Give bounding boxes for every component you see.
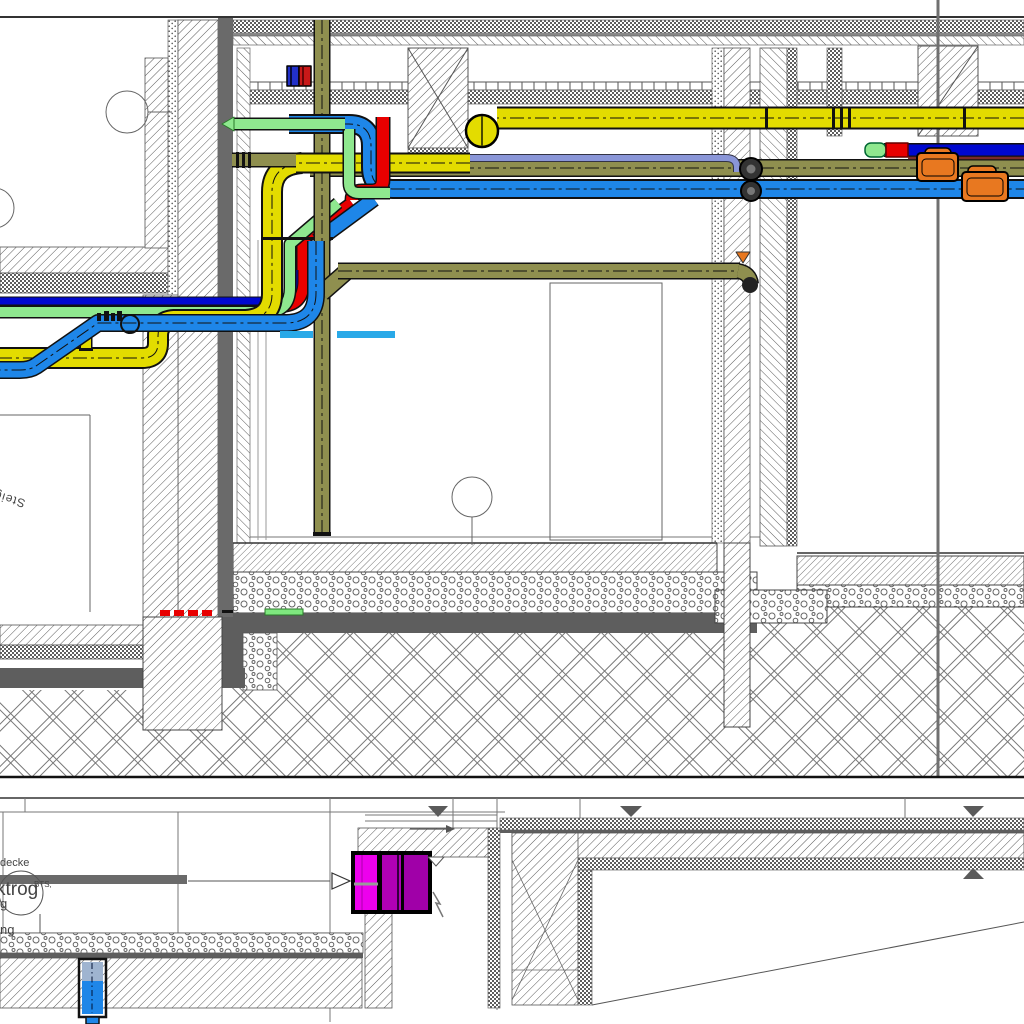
screed-hatch-band — [0, 958, 362, 1008]
ceiling-membrane-line — [233, 33, 1024, 36]
duct-end-cap — [742, 277, 758, 293]
left-floor-insulation — [0, 645, 160, 659]
gravel-step — [243, 633, 277, 690]
pipe-red-segment — [886, 143, 908, 157]
cyan-dash — [337, 331, 395, 338]
insulation-strip — [578, 870, 592, 1005]
green-seal-bar — [265, 609, 303, 615]
earth-hatch — [0, 690, 143, 776]
earth-hatch — [243, 633, 757, 776]
duct-wall-flange-hub — [747, 165, 756, 174]
insulation-band — [578, 858, 1024, 870]
inner-lining-upper — [145, 58, 168, 248]
lower-labels: decke ktrog BTS, g ng — [0, 857, 52, 937]
lower-floor — [0, 933, 363, 1008]
pipe-green-cap — [865, 143, 886, 157]
cyan-dash — [280, 331, 313, 338]
gravel-band-right — [797, 585, 1024, 607]
slab-line — [0, 953, 363, 958]
pipe-wall-flange-hub — [747, 187, 755, 195]
insulation-band — [500, 818, 1024, 830]
suspended-ceiling-insulation — [237, 90, 1024, 104]
shaft-wall-hatch — [365, 913, 392, 1008]
ceiling-insulation-band — [233, 20, 1024, 33]
suspended-ceiling-rail — [237, 82, 1024, 90]
left-floor-screed — [0, 625, 160, 645]
base-slab — [213, 613, 757, 633]
column-footing — [724, 543, 750, 727]
upper-section: Steig — [0, 0, 1024, 777]
stub-flange — [79, 348, 93, 351]
screed-band — [233, 543, 717, 572]
label-ng: ng — [0, 922, 14, 937]
door-opening — [550, 283, 662, 540]
pipe-continuation — [86, 1017, 99, 1024]
blue-pipe-section — [79, 959, 106, 1024]
flange-tick — [248, 152, 251, 168]
unit-panel-3 — [404, 855, 428, 910]
drain-zigzag-mark — [433, 892, 443, 917]
lower-roof-assembly — [500, 818, 1024, 1005]
riser-label: Steig — [0, 488, 27, 511]
valve-block-pair — [287, 66, 311, 86]
screed-band-right — [797, 556, 1024, 585]
screed-band — [512, 833, 1024, 858]
section-drawing: Steig — [0, 0, 1024, 1024]
flow-arrow-open — [332, 873, 350, 889]
callout-balloon — [106, 91, 148, 133]
fire-damper-pipe — [962, 166, 1008, 201]
duct-end-tick — [313, 532, 331, 536]
wall-footing — [143, 617, 222, 730]
label-bts: BTS, — [34, 880, 52, 889]
lower-section: decke ktrog BTS, g ng — [0, 798, 1024, 1024]
membrane-line — [500, 830, 1024, 833]
gravel-band — [0, 933, 363, 953]
slope-line — [592, 922, 1024, 1005]
label-decke: decke — [0, 857, 29, 869]
joint-tick — [222, 610, 233, 613]
shaft-insulation-strip — [488, 828, 500, 1008]
left-upper-floor-screed — [0, 247, 168, 273]
earth-hatch — [757, 607, 1024, 776]
flange-tick — [242, 152, 245, 168]
gravel-band — [233, 572, 757, 613]
ceiling-screed-band — [233, 36, 1024, 45]
cad-viewport: Steig — [0, 0, 1024, 1024]
fire-damper-duct — [917, 148, 958, 181]
ahu-unit — [351, 851, 432, 914]
callout-balloon — [452, 477, 492, 517]
flange-tick — [236, 152, 239, 168]
left-upper-floor-insulation — [0, 273, 168, 293]
callout-balloon — [0, 188, 14, 228]
